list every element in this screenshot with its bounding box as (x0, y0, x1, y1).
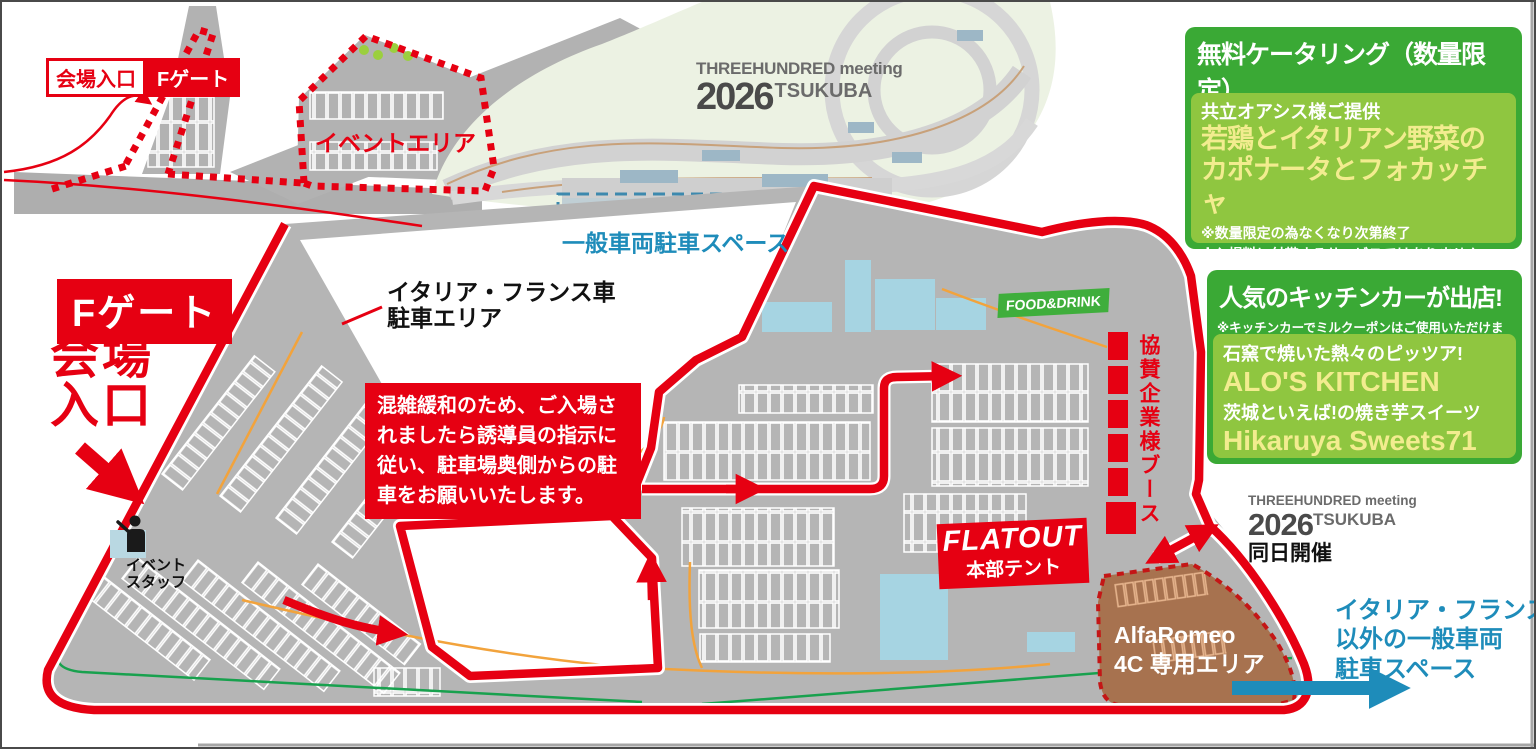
venue-entrance-label: 会場入口Fゲート (46, 58, 240, 97)
route-arrow-icon (651, 564, 652, 600)
circuit-logo-brand: THREEHUNDRED meeting (696, 60, 903, 77)
circuit-logo: THREEHUNDRED meeting 2026 TSUKUBA (696, 60, 903, 116)
flatout-hq-label: FLATOUT 本部テント (937, 518, 1090, 590)
circuit-logo-year: 2026 (696, 78, 773, 116)
same-day-event-logo: THREEHUNDRED meeting 2026 TSUKUBA 同日開催 (1248, 494, 1417, 564)
general-parking-label: 一般車両駐車スペース (562, 224, 789, 258)
event-area-label: イベントエリア (315, 124, 476, 158)
event-staff-label: イベント スタッフ (126, 557, 186, 592)
italia-france-parking-label: イタリア・フランス車 駐車エリア (387, 279, 616, 331)
kitchen-title: 人気のキッチンカーが出店! (1219, 278, 1510, 313)
catering-menu-panel: 共立オアシス様ご提供 若鶏とイタリアン野菜の カポナータとフォカッチャ ※数量限… (1191, 93, 1516, 243)
other-vehicles-parking-label: イタリア・フランス車 以外の一般車両 駐車スペース (1335, 596, 1536, 684)
entrance-text: 会場入口 (46, 58, 146, 97)
alfa-romeo-area-label: AlfaRomeo 4C 専用エリア (1114, 621, 1265, 679)
circuit-logo-venue: TSUKUBA (775, 81, 873, 101)
venue-map-page: 会場入口Fゲート イベントエリア THREEHUNDRED meeting 20… (0, 0, 1536, 749)
congestion-notice: 混雑緩和のため、ご入場されましたら誘導員の指示に従い、駐車場奥側からの駐車をお願… (365, 383, 641, 519)
entrance-arrow-icon (80, 448, 128, 490)
kitchen-car-info-box: 人気のキッチンカーが出店! ※キッチンカーでミルクーポンはご使用いただけません。… (1207, 270, 1522, 464)
kitchen-vendors-panel: 石窯で焼いた熱々のピッツア! ALO'S KITCHEN 茨城といえば!の焼き芋… (1213, 334, 1516, 458)
gate-text: Fゲート (146, 58, 240, 97)
sponsor-booth-label: 協賛企業様ブース (1133, 334, 1163, 554)
venue-entrance-big-label: 会場 入口 (50, 333, 154, 431)
catering-info-box: 無料ケータリング（数量限定） 受付でミルクーポンを配布します。 共立オアシス様ご… (1185, 27, 1522, 249)
